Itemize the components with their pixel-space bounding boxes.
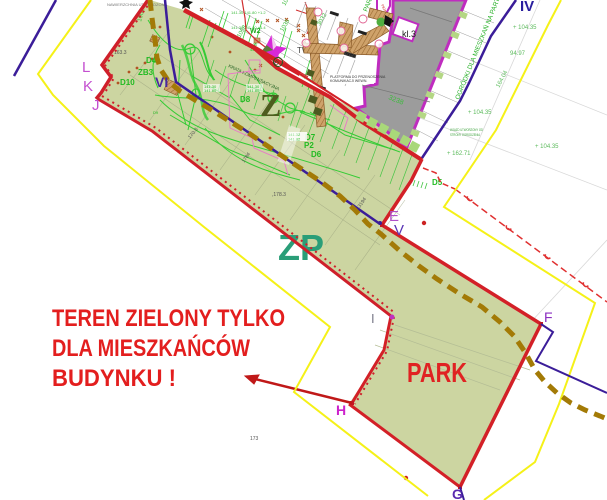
svg-text:173: 173 — [250, 436, 259, 442]
svg-text:141.30 141.80 +1.2: 141.30 141.80 +1.2 — [231, 10, 266, 15]
svg-text:94.97: 94.97 — [510, 51, 526, 57]
svg-text:141.80: 141.80 — [247, 88, 260, 93]
svg-text:+ 104.35: + 104.35 — [468, 110, 492, 116]
svg-text:PARK: PARK — [407, 357, 467, 388]
svg-text:Z: Z — [260, 87, 281, 123]
svg-text:V: V — [394, 222, 404, 239]
svg-text:TEREN ZIELONY TYLKO: TEREN ZIELONY TYLKO — [52, 305, 285, 332]
svg-text:D6: D6 — [311, 150, 322, 159]
svg-text:141.80: 141.80 — [204, 88, 217, 93]
svg-text:K: K — [83, 78, 93, 95]
svg-text:I: I — [371, 311, 375, 326]
svg-text:KOMUNIKACJI WEWN.: KOMUNIKACJI WEWN. — [330, 79, 367, 83]
svg-text:,178.3: ,178.3 — [272, 192, 286, 198]
svg-text:STRONY OGRODZENIA: STRONY OGRODZENIA — [450, 132, 480, 137]
svg-text:ZB3: ZB3 — [138, 68, 154, 77]
svg-text:IV: IV — [520, 0, 534, 15]
svg-text:D10: D10 — [120, 78, 135, 87]
svg-text:D8: D8 — [240, 95, 251, 104]
svg-text:G: G — [452, 486, 463, 500]
svg-text:D5: D5 — [432, 178, 443, 187]
svg-text:kl.3: kl.3 — [402, 29, 416, 39]
svg-text:VI: VI — [155, 74, 168, 90]
svg-text:L: L — [82, 59, 90, 76]
svg-text:BUDYNKU !: BUDYNKU ! — [52, 365, 176, 392]
svg-text:P2: P2 — [304, 141, 314, 150]
svg-text:D9: D9 — [153, 110, 159, 115]
svg-text:DLA MIESZKAŃCÓW: DLA MIESZKAŃCÓW — [52, 334, 250, 362]
svg-text:NAWIERZCHNIA UTWARDZONA: NAWIERZCHNIA UTWARDZONA — [107, 2, 167, 7]
svg-text:141.30 141.80 +1.4: 141.30 141.80 +1.4 — [231, 25, 266, 30]
svg-text:+ 104.35: + 104.35 — [535, 144, 559, 150]
svg-text:H: H — [336, 402, 346, 418]
svg-text:F: F — [544, 309, 553, 325]
svg-text:+ 104.35: + 104.35 — [513, 25, 537, 31]
svg-text:+ 162.71: + 162.71 — [447, 151, 471, 157]
svg-text:J: J — [92, 97, 100, 114]
